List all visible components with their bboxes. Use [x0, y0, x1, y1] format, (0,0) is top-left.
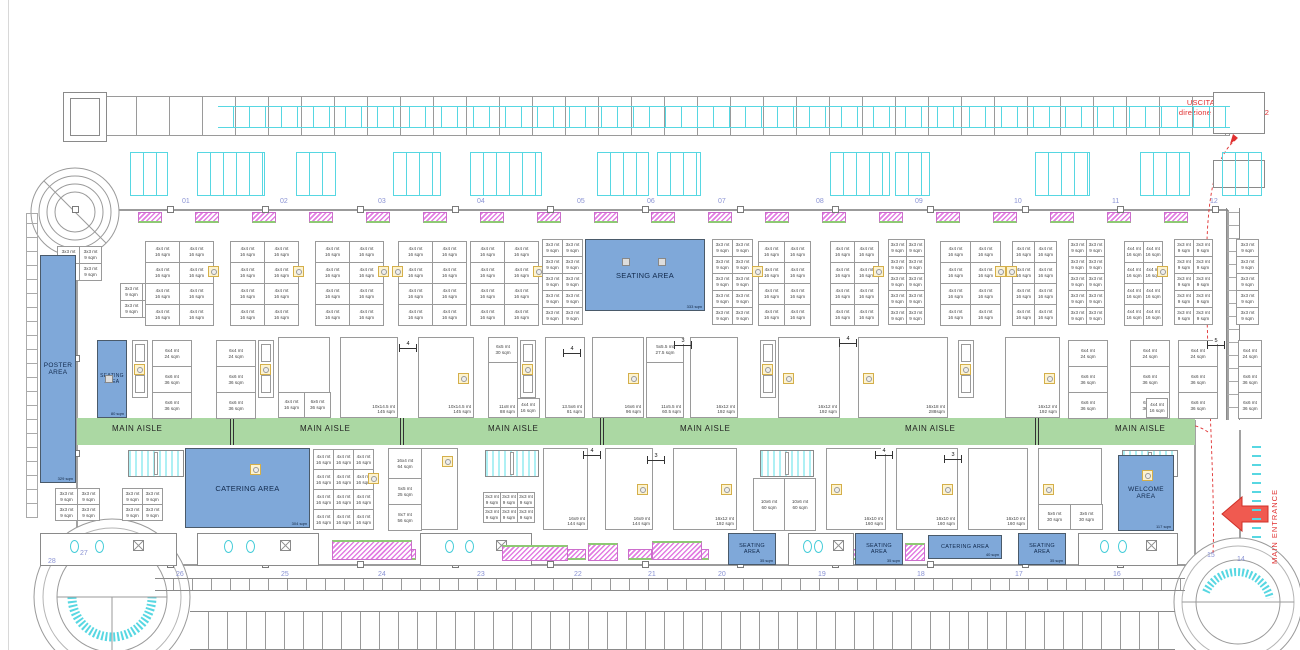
catering-area-b-label: CATERING AREA [941, 544, 989, 550]
terrace-arcade-upper [155, 578, 1185, 591]
booth-cell: 10x6 mt 60 sqm [784, 478, 816, 531]
pillar-box [261, 375, 271, 393]
wall-radiator [628, 549, 652, 560]
booth-cell: 4x4 mt 16 sqm [432, 262, 467, 284]
big-booth: 16x12 mt 192 sqm [690, 337, 738, 418]
wall-radiator [993, 212, 1017, 223]
booth-cell: 4x4 mt 16 sqm [313, 469, 334, 490]
grid-number-bottom: 26 [176, 571, 184, 578]
seating-area-top-label: SEATING AREA [616, 271, 674, 280]
exhibit-table [332, 540, 412, 560]
booth-cell: 3x3 mt 9 sqm [562, 290, 583, 308]
booth-cell: 4x4 mt 16 sqm [854, 304, 879, 326]
booth-cell: 4x4 mt 16 sqm [179, 283, 214, 305]
wall-radiator [138, 212, 162, 223]
big-booth-label: 16x12 mt 192 sqm [818, 404, 837, 415]
pillar-box [763, 375, 773, 393]
booth-cell: 4x4 mt 16 sqm [470, 283, 505, 305]
seating-area-b1-label: SEATING AREA [739, 543, 765, 555]
dimension-callout: 4 [583, 451, 601, 459]
booth-cell: 4x4 mt 16 sqm [1124, 283, 1144, 305]
booth-cell: 4x4 mt 16 sqm [516, 398, 540, 418]
pillar-box [763, 344, 773, 362]
grid-number-top: 03 [378, 198, 386, 205]
closet-icon [1146, 540, 1157, 551]
booth-cell: 4x4 mt 16 sqm [1012, 241, 1035, 263]
booth-cell: 3x3 mt 9 sqm [562, 239, 583, 257]
column-marker [783, 373, 794, 384]
booth-cell: 6x6 mt 36 sqm [152, 366, 192, 393]
booth-cell: 3x3 mt 9 sqm [906, 273, 925, 291]
main-entrance-arrow [1222, 497, 1268, 531]
grid-number-top: 04 [477, 198, 485, 205]
skylight-panel-group [296, 152, 336, 196]
booth-cell: 6x6 mt 36 sqm [1178, 392, 1218, 419]
booth-cell: 3x3 mt 9 sqm [732, 239, 753, 257]
booth-subcell: 4x4 mt 16 sqm [278, 392, 305, 418]
booth-cell: 4x4 mt 16 sqm [1143, 283, 1163, 305]
skylight-panel-group [657, 152, 701, 196]
booth-cell: 3x3 mt 9 sqm [542, 239, 563, 257]
main-aisle-label: MAIN AISLE [680, 424, 730, 433]
booth-cell: 3x3 mt 9 sqm [542, 307, 563, 325]
exhibit-table [905, 543, 925, 561]
skylight-panel-group [597, 152, 649, 196]
dimension-callout: 5 [1207, 341, 1225, 349]
big-booth-label: 13.5x6 mt 81 sqm [562, 404, 582, 415]
escalator-divider [510, 452, 514, 475]
booth-cell: 3x3 mt 9 sqm [1174, 239, 1194, 257]
booth-cell: 6x6 mt 36 sqm [152, 392, 192, 419]
booth-cell: 3x3 mt 9 sqm [888, 290, 907, 308]
big-booth-label: 16x12 mt 192 sqm [1038, 404, 1057, 415]
wall-radiator [195, 212, 219, 223]
grid-number-bottom: 20 [718, 571, 726, 578]
seating-area-b1-sqm: 35 sqm [760, 558, 773, 563]
booth-cell: 3x3 mt 9 sqm [562, 256, 583, 274]
structural-column [832, 206, 839, 213]
booth-cell: 4x4 mt 16 sqm [230, 241, 265, 263]
wall-radiator [366, 212, 390, 223]
booth-subcell: 5x5 mt 25 sqm [388, 478, 422, 505]
structural-column [927, 206, 934, 213]
catering-area-b: CATERING AREA40 sqm [928, 535, 1002, 559]
booth-cell: 3x3 mt 9 sqm [712, 273, 733, 291]
grid-number-bottom: 15 [1207, 552, 1215, 559]
booth-cell: 3x3 mt 9 sqm [1193, 307, 1213, 325]
dimension-callout: 4 [839, 339, 857, 347]
booth-cell: 4x4 mt 16 sqm [940, 283, 971, 305]
main-aisle-label: MAIN AISLE [905, 424, 955, 433]
booth-cell: 6x6 mt 36 sqm [1238, 392, 1262, 419]
big-booth-label: 16x9 mt 144 sqm [632, 516, 650, 527]
wall-radiator [1050, 212, 1074, 223]
booth-cell: 3x3 mt 9 sqm [1068, 307, 1087, 325]
main-aisle-label: MAIN AISLE [112, 424, 162, 433]
wall-radiator [594, 212, 618, 223]
booth-cell: 4x4 mt 16 sqm [353, 449, 374, 470]
column-marker [378, 266, 389, 277]
main-aisle-label: MAIN AISLE [1115, 424, 1165, 433]
skylight-panel-group [197, 152, 265, 196]
booth-cell: 4x4 mt 16 sqm [230, 262, 265, 284]
column-marker [522, 364, 533, 375]
skylight-panel-group [1035, 152, 1090, 196]
toilet-icon [246, 540, 255, 553]
column-marker [134, 364, 145, 375]
grid-number-bottom: 22 [574, 571, 582, 578]
structural-column [547, 561, 554, 568]
booth-cell: 6x6 mt 36 sqm [216, 366, 256, 393]
booth-cell: 4x4 mt 16 sqm [432, 304, 467, 326]
booth-cell: 4x4 mt 16 sqm [145, 304, 180, 326]
booth-cell: 4x4 mt 16 sqm [940, 241, 971, 263]
booth-cell: 6x4 mt 24 sqm [1068, 340, 1108, 367]
booth-cell: 3x3 mt 9 sqm [1193, 290, 1213, 308]
skylight-panel-group [1140, 152, 1190, 196]
seating-area-top: SEATING AREA333 sqm [585, 239, 705, 311]
big-booth-label: 16x12 mt 192 sqm [715, 516, 734, 527]
booth-cell: 3x3 mt 9 sqm [120, 283, 143, 301]
booth-cell: 4x4 mt 16 sqm [349, 283, 384, 305]
catering-area-main-label: CATERING AREA [215, 484, 279, 493]
booth-cell: 4x4 mt 16 sqm [230, 304, 265, 326]
booth-cell: 4x4 mt 16 sqm [1012, 304, 1035, 326]
booth-cell: 3x3 mt 9 sqm [888, 273, 907, 291]
stair-circle-bottom-right [1174, 538, 1300, 650]
booth-cell: 3x3 mt 9 sqm [1174, 307, 1194, 325]
booth-cell: 3x3 mt 9 sqm [1193, 273, 1213, 291]
booth-cell: 4x4 mt 16 sqm [1143, 241, 1163, 263]
skylight-panel-group [830, 152, 890, 196]
grid-number-bottom: 19 [818, 571, 826, 578]
grid-number-bottom: 25 [281, 571, 289, 578]
grid-number-top: 10 [1014, 198, 1022, 205]
booth-cell: 4x4 mt 16 sqm [758, 241, 785, 263]
booth-cell: 6x4 mt 24 sqm [1238, 340, 1262, 367]
booth-cell: 3x3 mt 9 sqm [142, 488, 163, 505]
grid-number-bottom: 18 [917, 571, 925, 578]
booth-cell: 4x4 mt 16 sqm [940, 262, 971, 284]
booth-cell: 4x4 mt 16 sqm [179, 304, 214, 326]
seating-area-b1: SEATING AREA35 sqm [728, 533, 776, 565]
booth-cell: 4x4 mt 16 sqm [313, 489, 334, 510]
booth-cell: 4x4 mt 16 sqm [970, 304, 1001, 326]
structural-column [547, 206, 554, 213]
structural-column [357, 561, 364, 568]
dimension-callout: 3 [647, 456, 665, 464]
column-marker [721, 484, 732, 495]
column-marker [752, 266, 763, 277]
column-marker [1044, 373, 1055, 384]
pillar-box [261, 344, 271, 362]
booth-cell: 4x4 mt 16 sqm [145, 283, 180, 305]
booth-cell: 4x4 mt 16 sqm [1124, 241, 1144, 263]
big-booth-label: 16x10 mt 160 sqm [936, 516, 955, 527]
catering-area-main: CATERING AREA304 sqm [185, 448, 310, 528]
booth-cell: 3x3 mt 9 sqm [1086, 256, 1105, 274]
booth-cell: 6x6 mt 36 sqm [1130, 366, 1170, 393]
wall-radiator [537, 212, 561, 223]
wall-radiator [252, 212, 276, 223]
skylight-panel-group [130, 152, 168, 196]
big-booth: 10x14.5 mt 145 sqm [340, 337, 398, 418]
booth-cell: 4x4 mt 16 sqm [830, 304, 855, 326]
skylight-panel-group [470, 152, 542, 196]
booth-subcell: 8x7 mt 56 sqm [388, 504, 422, 531]
closet-icon [280, 540, 291, 551]
grid-number-bottom: 24 [378, 571, 386, 578]
grid-number-bottom: 27 [80, 550, 88, 557]
booth-cell: 3x3 mt 9 sqm [906, 290, 925, 308]
wall-radiator [822, 212, 846, 223]
big-booth-label: 16x10 mt 160 sqm [1006, 516, 1025, 527]
seating-area-b2: SEATING AREA35 sqm [855, 533, 903, 565]
column-marker [1043, 484, 1054, 495]
booth-cell: 4x4 mt 16 sqm [264, 283, 299, 305]
booth-cell: 4x4 mt 16 sqm [432, 283, 467, 305]
pillar-box [135, 375, 145, 393]
booth-cell: 4x4 mt 16 sqm [349, 241, 384, 263]
column-marker [1006, 266, 1017, 277]
column-marker [628, 373, 639, 384]
booth-cell: 3x3 mt 9 sqm [122, 488, 143, 505]
booth-cell: 3x3 mt 9 sqm [712, 290, 733, 308]
big-booth-label: 16x12 mt 192 sqm [716, 404, 735, 415]
poster-area-sqm: 329 sqm [58, 476, 73, 481]
wall-radiator [480, 212, 504, 223]
booth-cell: 3x3 mt 9 sqm [483, 492, 501, 508]
booth-cell: 4x4 mt 16 sqm [784, 241, 811, 263]
booth-cell: 6x6 mt 36 sqm [1068, 366, 1108, 393]
booth-cell: 4x4 mt 16 sqm [758, 304, 785, 326]
booth-cell: 6x6 mt 36 sqm [1238, 366, 1262, 393]
booth-cell: 4x4 mt 16 sqm [940, 304, 971, 326]
booth-cell: 6x6 mt 36 sqm [1178, 366, 1218, 393]
dimension-callout: 4 [563, 349, 581, 357]
booth-cell: 3x3 mt 9 sqm [712, 307, 733, 325]
dimension-callout: 4 [399, 344, 417, 352]
booth-cell: 3x3 mt 9 sqm [77, 504, 100, 521]
column-marker [762, 364, 773, 375]
skylight-panel-group [895, 152, 930, 196]
structural-column [167, 206, 174, 213]
wall-radiator [651, 212, 675, 223]
booth-cell: 4x4 mt 16 sqm [313, 509, 334, 530]
left-service-strip [26, 213, 38, 518]
big-booth-label: 16x18 mt 288sqm [926, 404, 945, 415]
booth-cell: 4x4 mt 16 sqm [179, 241, 214, 263]
booth-cell: 3x3 mt 9 sqm [1236, 273, 1259, 291]
closet-icon [133, 540, 144, 551]
top-left-vestibule-inner [70, 98, 100, 136]
booth-cell: 4x4 mt 16 sqm [1034, 262, 1057, 284]
structural-column [642, 206, 649, 213]
skylight-band [218, 106, 1230, 128]
big-booth: 16x9 mt 144 sqm [543, 448, 588, 530]
booth-cell: 4x4 mt 16 sqm [398, 262, 433, 284]
booth-cell: 4x4 mt 16 sqm [784, 283, 811, 305]
booth-cell: 4x4 mt 16 sqm [758, 283, 785, 305]
exhibit-table [502, 545, 568, 561]
wall-radiator [1164, 212, 1188, 223]
booth-cell: 6x4 mt 24 sqm [152, 340, 192, 367]
booth-cell: 4x4 mt 16 sqm [264, 304, 299, 326]
booth-cell: 4x4 mt 16 sqm [315, 241, 350, 263]
catering-area-main-sqm: 304 sqm [292, 521, 307, 526]
booth-cell: 6x4 mt 24 sqm [1130, 340, 1170, 367]
booth-cell: 3x3 mt 9 sqm [732, 273, 753, 291]
booth-cell: 4x4 mt 16 sqm [432, 241, 467, 263]
booth-cell: 4x4 mt 16 sqm [830, 262, 855, 284]
dimension-callout: 3 [944, 455, 962, 463]
booth-cell: 4x4 mt 16 sqm [313, 449, 334, 470]
booth-cell: 3x3 mt 9 sqm [483, 507, 501, 523]
booth-cell: 3x3 mt 9 sqm [1086, 307, 1105, 325]
booth-cell: 4x4 mt 16 sqm [230, 283, 265, 305]
booth-cell: 10x6 mt 60 sqm [753, 478, 785, 531]
booth-cell: 4x4 mt 16 sqm [504, 304, 539, 326]
booth-cell: 4x4 mt 16 sqm [1034, 241, 1057, 263]
booth-subcell: 3x6 mt 30 sqm [1070, 504, 1103, 530]
wall-radiator [879, 212, 903, 223]
escalator-divider [154, 452, 158, 475]
booth-cell: 3x3 mt 9 sqm [906, 307, 925, 325]
booth-cell: 4x4 mt 16 sqm [1034, 304, 1057, 326]
grid-number-top: 07 [718, 198, 726, 205]
big-booth-label: 11x8 mt 88 sqm [499, 404, 515, 415]
big-booth: 16x10 mt 160 sqm [968, 448, 1028, 530]
closet-icon [833, 540, 844, 551]
booth-cell: 4x4 mt 16 sqm [333, 489, 354, 510]
column-marker [458, 373, 469, 384]
aisle-divider-tick [600, 418, 604, 445]
terrace-arcade-lower [190, 611, 1175, 650]
structural-column [1022, 206, 1029, 213]
floor-plan: USCITA AREA EXPO direzione MiCo Sud liv … [0, 0, 1300, 650]
booth-cell: 6x4 mt 24 sqm [216, 340, 256, 367]
column-marker [392, 266, 403, 277]
services-block [197, 533, 319, 566]
grid-number-top: 11 [1112, 198, 1119, 205]
booth-cell: 4x4 mt 16 sqm [854, 241, 879, 263]
booth-cell: 3x3 mt 9 sqm [888, 239, 907, 257]
structural-column [927, 561, 934, 568]
booth-cell: 3x3 mt 9 sqm [1236, 239, 1259, 257]
booth-cell: 3x3 mt 9 sqm [888, 307, 907, 325]
column-marker [863, 373, 874, 384]
grid-number-top: 05 [577, 198, 585, 205]
welcome-area-sqm: 117 sqm [1156, 524, 1171, 529]
poster-area-label: POSTER AREA [44, 362, 73, 376]
booth-subcell: 6x5 mt 30 sqm [488, 337, 518, 363]
skylight-panel-group [393, 152, 441, 196]
column-marker [442, 456, 453, 467]
column-marker [995, 266, 1006, 277]
booth-cell: 4x4 mt 16 sqm [830, 283, 855, 305]
booth-cell: 3x3 mt 9 sqm [120, 300, 143, 318]
toilet-icon [465, 540, 474, 553]
area-anchor-mark [105, 375, 113, 383]
booth-cell: 3x3 mt 9 sqm [55, 504, 78, 521]
aisle-divider-tick [230, 418, 234, 445]
booth-cell: 3x3 mt 9 sqm [55, 488, 78, 505]
dimension-callout: 4 [875, 451, 893, 459]
dimension-callout: 3 [674, 341, 692, 349]
booth-cell: 4x4 mt 16 sqm [830, 241, 855, 263]
big-booth-label: 16x10 mt 160 sqm [864, 516, 883, 527]
booth-cell: 3x3 mt 9 sqm [732, 290, 753, 308]
column-marker [260, 364, 271, 375]
toilet-icon [1100, 540, 1109, 553]
booth-cell: 3x3 mt 9 sqm [500, 492, 518, 508]
booth-cell: 3x3 mt 9 sqm [542, 273, 563, 291]
pillar-box [135, 344, 145, 362]
booth-cell: 4x4 mt 16 sqm [784, 304, 811, 326]
services-block [40, 533, 177, 566]
booth-cell: 3x3 mt 9 sqm [732, 307, 753, 325]
booth-cell: 3x3 mt 9 sqm [517, 492, 535, 508]
booth-cell: 3x3 mt 9 sqm [1174, 273, 1194, 291]
booth-cell: 4x4 mt 16 sqm [470, 304, 505, 326]
booth-cell: 3x3 mt 9 sqm [142, 504, 163, 521]
seating-area-b3-sqm: 35 sqm [1050, 558, 1063, 563]
booth-cell: 3x3 mt 9 sqm [1174, 290, 1194, 308]
exhibit-table [652, 541, 702, 560]
area-anchor-mark [658, 258, 666, 266]
grid-number-bottom: 23 [477, 571, 485, 578]
column-marker [250, 464, 261, 475]
toilet-icon [803, 540, 812, 553]
booth-cell: 4x4 mt 16 sqm [1124, 304, 1144, 326]
booth-cell: 4x4 mt 16 sqm [315, 304, 350, 326]
grid-number-top: 06 [647, 198, 655, 205]
main-aisle-label: MAIN AISLE [300, 424, 350, 433]
booth-cell: 3x3 mt 9 sqm [79, 246, 102, 264]
grid-number-bottom: 28 [48, 558, 56, 565]
booth-cell: 3x3 mt 9 sqm [517, 507, 535, 523]
booth-cell: 4x4 mt 16 sqm [504, 283, 539, 305]
booth-cell: 4x4 mt 16 sqm [145, 262, 180, 284]
wall-radiator [765, 212, 789, 223]
grid-number-bottom: 21 [648, 571, 656, 578]
booth-cell: 3x3 mt 9 sqm [562, 273, 583, 291]
booth-cell: 3x3 mt 9 sqm [77, 488, 100, 505]
booth-cell: 3x3 mt 9 sqm [712, 239, 733, 257]
grid-number-top: 09 [915, 198, 923, 205]
booth-cell: 3x3 mt 9 sqm [79, 263, 102, 281]
big-booth-label: 10x14.5 mt 145 sqm [372, 404, 395, 415]
grid-number-bottom: 16 [1113, 571, 1121, 578]
structural-column [737, 206, 744, 213]
booth-cell: 4x4 mt 16 sqm [1012, 283, 1035, 305]
booth-cell: 3x3 mt 9 sqm [542, 256, 563, 274]
toilet-icon [445, 540, 454, 553]
booth-cell: 4x4 mt 16 sqm [784, 262, 811, 284]
toilet-icon [224, 540, 233, 553]
exhibit-table [588, 543, 618, 561]
booth-cell: 3x3 mt 9 sqm [500, 507, 518, 523]
grid-number-bottom: 17 [1015, 571, 1023, 578]
booth-cell: 3x3 mt 9 sqm [1193, 239, 1213, 257]
booth-cell: 4x4 mt 16 sqm [353, 509, 374, 530]
wall-radiator [309, 212, 333, 223]
booth-cell: 3x3 mt 9 sqm [1193, 256, 1213, 274]
booth-cell: 4x4 mt 16 sqm [398, 241, 433, 263]
escalator-divider [785, 452, 789, 475]
booth-cell: 4x4 mt 16 sqm [470, 262, 505, 284]
toilet-icon [1118, 540, 1127, 553]
